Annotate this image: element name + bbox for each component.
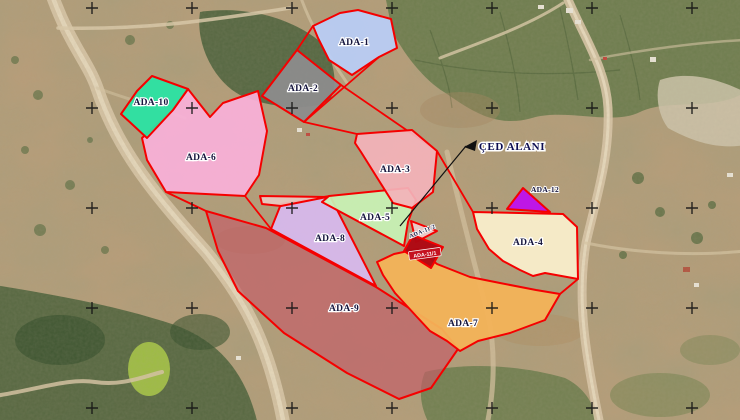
parcel-label-ada-3: ADA-3: [380, 165, 410, 175]
parcel-label-ada-7: ADA-7: [448, 319, 478, 329]
parcel-label-ada-2: ADA-2: [288, 84, 318, 94]
parcel-label-ada-4: ADA-4: [513, 238, 543, 248]
parcel-label-ada-10: ADA-10: [133, 98, 168, 108]
ced-alani-label: ÇED ALANI: [479, 141, 545, 153]
parcel-label-ada-9: ADA-9: [329, 304, 359, 314]
parcel-label-ada-6: ADA-6: [186, 153, 216, 163]
parcel-label-ada-5: ADA-5: [360, 213, 390, 223]
parcel-label-ada-12: ADA-12: [531, 185, 559, 194]
parcel-label-ada-8: ADA-8: [315, 234, 345, 244]
satellite-map-canvas: ADA-9ADA-8ADA-5ADA-3ADA-6ADA-10ADA-2ADA-…: [0, 0, 740, 420]
parcel-label-ada-1: ADA-1: [339, 38, 369, 48]
zoning-map-image: ADA-9ADA-8ADA-5ADA-3ADA-6ADA-10ADA-2ADA-…: [0, 0, 740, 420]
